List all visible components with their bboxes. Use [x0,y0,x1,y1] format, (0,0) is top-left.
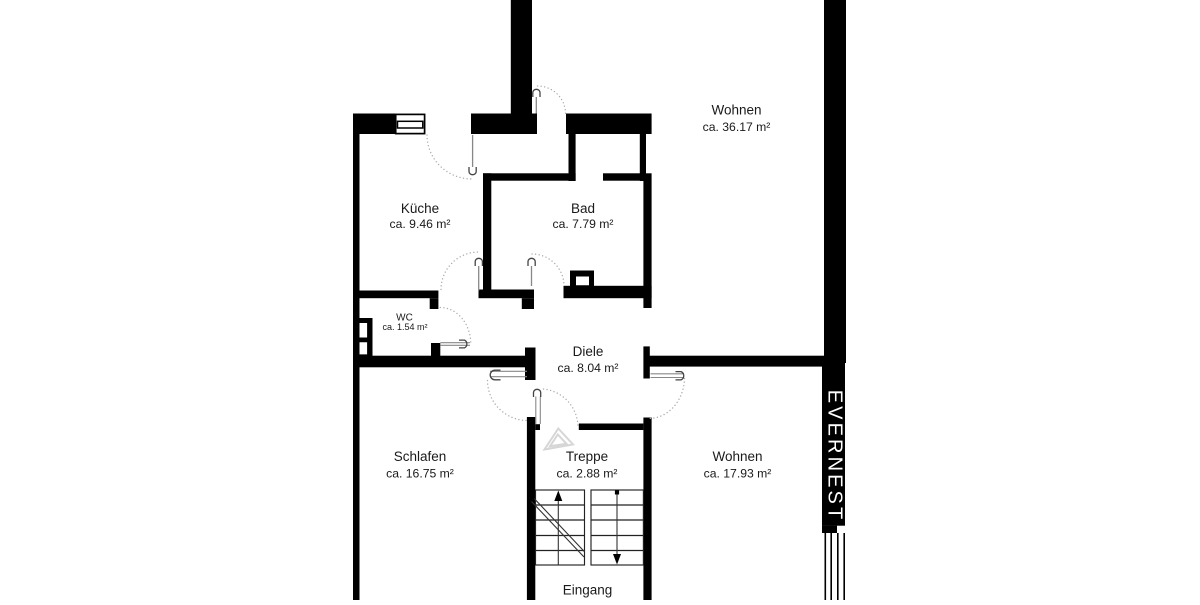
svg-text:ca. 16.75 m²: ca. 16.75 m² [386,467,454,481]
svg-text:Wohnen: Wohnen [712,449,762,464]
svg-text:ca. 2.88 m²: ca. 2.88 m² [557,467,618,481]
svg-text:EVERNEST: EVERNEST [824,390,846,523]
svg-text:Eingang: Eingang [563,583,613,598]
svg-text:ca. 36.17 m²: ca. 36.17 m² [703,120,771,134]
svg-text:ca. 8.04 m²: ca. 8.04 m² [558,361,619,375]
svg-text:Schlafen: Schlafen [394,449,447,464]
svg-text:Bad: Bad [571,201,595,216]
svg-text:ca. 7.79 m²: ca. 7.79 m² [553,217,614,231]
svg-text:ca. 17.93 m²: ca. 17.93 m² [704,467,772,481]
svg-text:Treppe: Treppe [566,449,608,464]
svg-text:ca. 1.54 m²: ca. 1.54 m² [382,322,427,332]
svg-text:ca. 9.46 m²: ca. 9.46 m² [390,217,451,231]
svg-text:Wohnen: Wohnen [711,103,761,118]
svg-text:Diele: Diele [573,344,604,359]
svg-text:Küche: Küche [401,201,439,216]
